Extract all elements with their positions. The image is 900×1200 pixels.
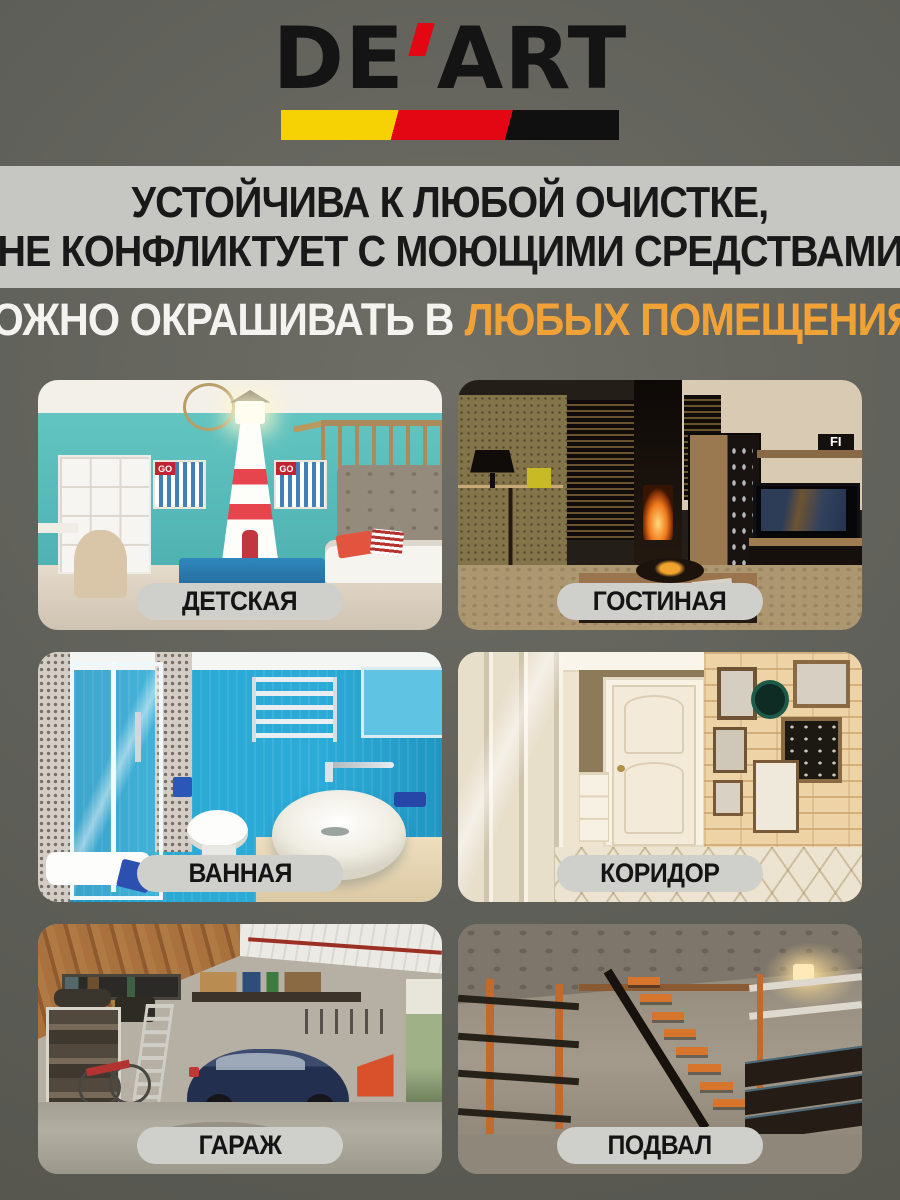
brand-logo: DE ART [0, 20, 900, 140]
fireplace-column [634, 380, 682, 580]
brand-wordmark: DE ART [273, 20, 628, 99]
brand-name-left: DE [273, 20, 405, 99]
promo-page: DE ART УСТОЙЧИВА К ЛЮБОЙ ОЧИСТКЕ, НЕ КОН… [0, 0, 900, 1200]
room-label: ГОСТИНАЯ [593, 586, 726, 617]
picture-frame [793, 660, 849, 708]
tv-stand [749, 538, 862, 566]
lighthouse-door [242, 530, 258, 560]
decor-bowl [636, 558, 705, 583]
table-lamp [470, 450, 514, 473]
desk [38, 523, 78, 533]
brand-name-right: ART [437, 20, 628, 99]
room-badge: ВАННАЯ [137, 855, 343, 892]
stair-step [688, 1064, 720, 1072]
stair-step [676, 1047, 708, 1055]
car-taillight [189, 1067, 199, 1077]
beige-chair [74, 530, 127, 598]
room-badge: ГАРАЖ [137, 1127, 343, 1164]
mirror-reflection [458, 652, 563, 902]
room-badge: ДЕТСКАЯ [137, 583, 343, 620]
striped-toy-box: GO [274, 460, 326, 509]
wall-shelf [757, 450, 862, 458]
white-console [579, 772, 609, 842]
room-badge: ГОСТИНАЯ [557, 583, 763, 620]
brand-flag-stripe [281, 110, 619, 140]
picture-frame [713, 780, 743, 816]
shower-hose [135, 712, 141, 762]
paper-holder [173, 777, 191, 797]
yellow-planter [527, 468, 551, 488]
headline-line-1: УСТОЙЧИВА К ЛЮБОЙ ОЧИСТКЕ, [132, 179, 769, 227]
room-label: ПОДВАЛ [608, 1130, 712, 1161]
picture-frame [753, 760, 799, 834]
room-card-living: FI ГОСТИНАЯ [458, 380, 862, 630]
rooms-grid: GO GO ДЕТСКАЯ [38, 380, 862, 1174]
stair-step [628, 977, 660, 985]
go-label: GO [155, 462, 175, 475]
headline-line-2: НЕ КОНФЛИКТУЕТ С МОЮЩИМИ СРЕДСТВАМИ [0, 228, 900, 276]
bunk-bed-rail [321, 420, 442, 469]
mirror [361, 667, 442, 738]
sink-drain [321, 827, 349, 836]
subheadline-orange-part: ЛЮБЫХ ПОМЕЩЕНИЯХ [465, 294, 900, 346]
room-card-bath: ВАННАЯ [38, 652, 442, 902]
room-badge: КОРИДОР [557, 855, 763, 892]
shelf-letters: FI [818, 434, 854, 450]
faucet-spout [325, 762, 333, 782]
room-label: ВАННАЯ [188, 858, 292, 889]
chandelier-icon [183, 383, 235, 431]
towel-rail [252, 677, 337, 742]
room-label: ДЕТСКАЯ [182, 586, 297, 617]
picture-frame [713, 727, 747, 773]
fireplace-fire [643, 485, 673, 540]
stair-step [640, 994, 672, 1002]
room-badge: ПОДВАЛ [557, 1127, 763, 1164]
brand-apostrophe-icon [408, 23, 434, 56]
striped-pillow [370, 528, 405, 556]
room-card-corridor: КОРИДОР [458, 652, 862, 902]
blue-accessory [394, 792, 426, 807]
go-label: GO [276, 462, 296, 475]
round-frame [751, 680, 789, 719]
room-card-garage: ГАРАЖ [38, 924, 442, 1174]
stair-step [664, 1029, 696, 1037]
striped-toy-box: GO [153, 460, 205, 509]
door-panel [624, 762, 685, 834]
mezzanine-beam [192, 992, 362, 1002]
tv-screen [761, 489, 846, 532]
door-panel [624, 695, 685, 754]
wall-tools [305, 1009, 394, 1034]
headline-band: УСТОЙЧИВА К ЛЮБОЙ ОЧИСТКЕ, НЕ КОНФЛИКТУЕ… [0, 166, 900, 288]
storage-boxes [200, 972, 321, 992]
subheadline-white-part: МОЖНО ОКРАШИВАТЬ В [0, 294, 454, 346]
room-card-basement: ПОДВАЛ [458, 924, 862, 1174]
open-side-door [402, 979, 442, 1104]
subheadline: МОЖНО ОКРАШИВАТЬ В ЛЮБЫХ ПОМЕЩЕНИЯХ [36, 292, 864, 348]
car-windows [216, 1053, 305, 1071]
stair-step [652, 1012, 684, 1020]
room-label: КОРИДОР [600, 858, 719, 889]
room-card-kids: GO GO ДЕТСКАЯ [38, 380, 442, 630]
lighthouse-lantern [235, 401, 265, 424]
stair-step [713, 1099, 745, 1107]
blinds-window [567, 400, 636, 540]
door-handle [617, 765, 625, 773]
bicycle-wheel [109, 1064, 151, 1105]
stair-step [700, 1082, 732, 1090]
stored-gear [54, 989, 111, 1007]
wall-faucet [325, 762, 394, 768]
room-label: ГАРАЖ [199, 1130, 282, 1161]
lamp-stem [490, 473, 495, 488]
